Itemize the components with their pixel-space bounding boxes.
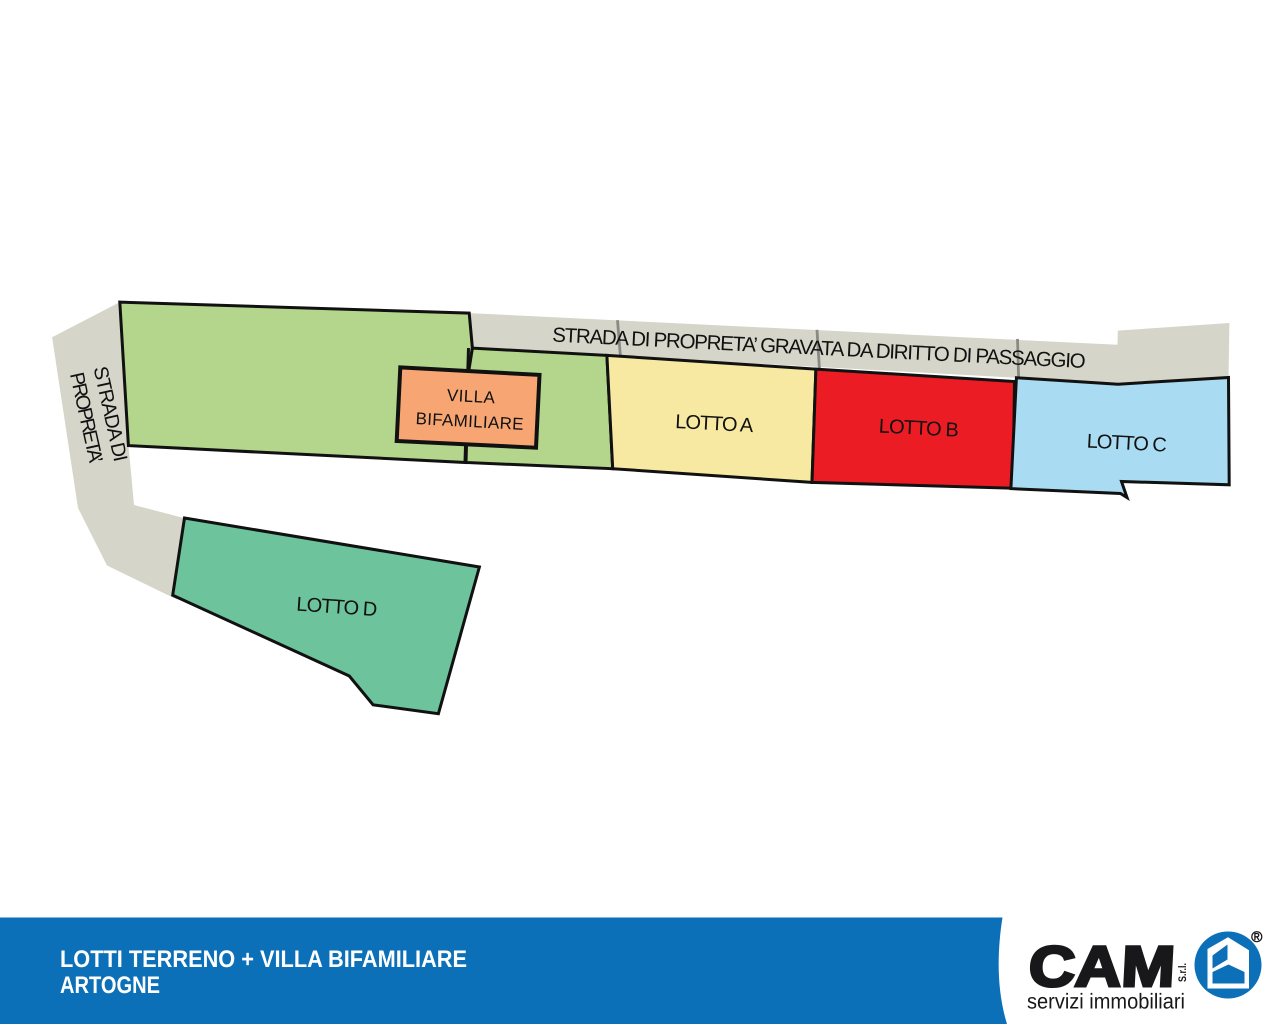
- svg-text:VILLA: VILLA: [446, 386, 496, 408]
- svg-text:LOTTO B: LOTTO B: [878, 416, 959, 442]
- svg-text:ARTOGNE: ARTOGNE: [60, 972, 160, 999]
- svg-text:S.r.l.: S.r.l.: [1177, 963, 1189, 982]
- svg-text:LOTTI TERRENO + VILLA BIFAMILI: LOTTI TERRENO + VILLA BIFAMILIARE: [60, 946, 467, 973]
- svg-text:LOTTO A: LOTTO A: [675, 411, 755, 437]
- svg-text:LOTTO C: LOTTO C: [1086, 431, 1167, 457]
- svg-text:servizi immobiliari: servizi immobiliari: [1027, 990, 1185, 1014]
